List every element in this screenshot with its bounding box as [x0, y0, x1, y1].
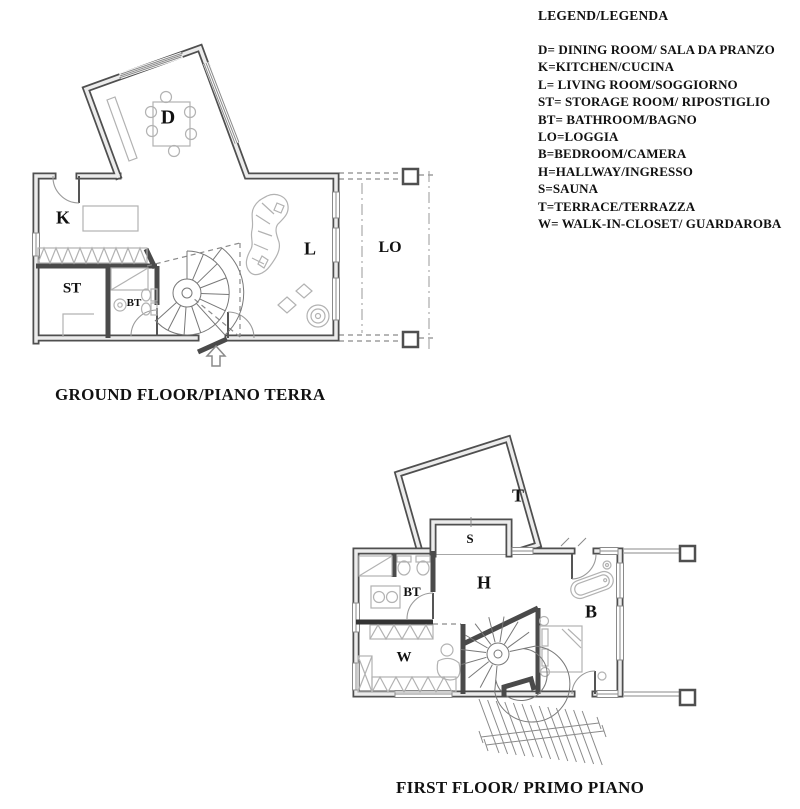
room-label-terrace: T [512, 486, 524, 507]
ground-furniture [38, 92, 329, 328]
loggia-pillar [403, 332, 418, 347]
legend-item: D= DINING ROOM/ SALA DA PRANZO [538, 41, 796, 58]
legend-item: BT= BATHROOM/BAGNO [538, 111, 796, 128]
legend-item: K=KITCHEN/CUCINA [538, 58, 796, 75]
ground-floor-title: GROUND FLOOR/PIANO TERRA [55, 385, 325, 405]
room-label-walk-in-closet: W [397, 650, 412, 667]
room-label-bedroom: B [585, 602, 597, 623]
kitchen-door-arc [53, 176, 79, 203]
loggia-pillar [403, 169, 418, 184]
room-label-storage: ST [63, 281, 81, 298]
pillar [680, 690, 695, 705]
legend-item: S=SAUNA [538, 180, 796, 197]
legend-item: ST= STORAGE ROOM/ RIPOSTIGLIO [538, 93, 796, 110]
legend-item: T=TERRACE/TERRAZZA [538, 198, 796, 215]
ground-interior-walls [36, 249, 157, 338]
legend-item: H=HALLWAY/INGRESSO [538, 163, 796, 180]
ground-floor-plan [33, 48, 435, 366]
cushion [278, 297, 296, 313]
round-table [307, 305, 329, 327]
room-label-bathroom-first: BT [403, 584, 420, 600]
room-label-bathroom-ground: BT [127, 297, 142, 309]
floor-plan-page: D K L LO ST BT T S H BT B W GROUND FLOOR… [0, 0, 800, 809]
legend: LEGEND/LEGENDA D= DINING ROOM/ SALA DA P… [538, 8, 796, 232]
loggia-area [339, 169, 434, 349]
legend-item: W= WALK-IN-CLOSET/ GUARDAROBA [538, 215, 796, 232]
first-floor-title: FIRST FLOOR/ PRIMO PIANO [396, 778, 644, 798]
legend-item: L= LIVING ROOM/SOGGIORNO [538, 76, 796, 93]
ground-spiral-stair [147, 243, 244, 337]
kitchen-counter [38, 248, 147, 263]
legend-title: LEGEND/LEGENDA [538, 8, 796, 24]
room-label-dining: D [161, 107, 175, 130]
room-label-loggia: LO [378, 239, 401, 257]
cushion [296, 284, 312, 298]
legend-item: B=BEDROOM/CAMERA [538, 145, 796, 162]
room-label-sauna: S [466, 531, 473, 547]
pillar [680, 546, 695, 561]
legend-item: LO=LOGGIA [538, 128, 796, 145]
sofa [246, 194, 288, 274]
first-floor-pillars [624, 546, 695, 705]
room-label-kitchen: K [56, 208, 70, 229]
room-label-hallway: H [477, 573, 491, 594]
room-label-living: L [304, 239, 316, 260]
kitchen-island [83, 206, 138, 231]
